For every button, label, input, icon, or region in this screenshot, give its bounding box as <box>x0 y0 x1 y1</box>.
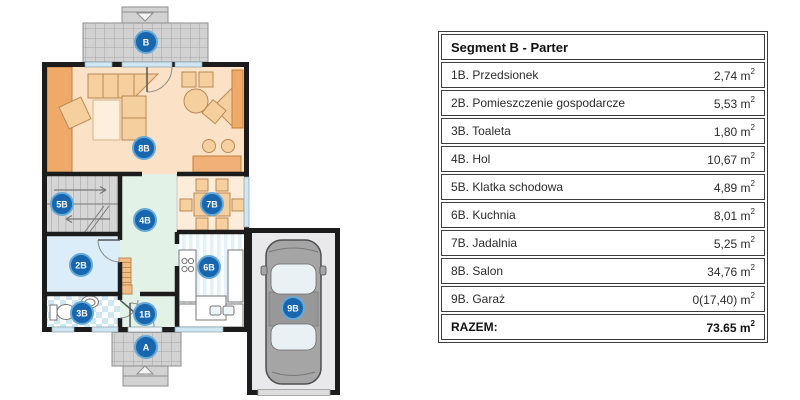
room-label: 2B. Pomieszczenie gospodarcze <box>451 96 625 110</box>
svg-text:3B: 3B <box>76 309 88 319</box>
table-row: 5B. Klatka schodowa 4,89 m2 <box>441 174 765 200</box>
total-label: RAZEM: <box>451 320 498 334</box>
garage-door <box>258 390 330 396</box>
svg-text:8B: 8B <box>138 144 150 154</box>
room-area: 10,67 m2 <box>707 152 755 167</box>
marker-utility: 2B <box>70 254 92 276</box>
table-row: 9B. Garaż 0(17,40) m2 <box>441 286 765 312</box>
table-row: 2B. Pomieszczenie gospodarcze 5,53 m2 <box>441 90 765 116</box>
room-area: 0(17,40) m2 <box>693 292 756 307</box>
room-label: 9B. Garaż <box>451 292 505 306</box>
marker-kitchen: 6B <box>198 256 220 278</box>
room-label: 8B. Salon <box>451 264 503 278</box>
marker-toilet: 3B <box>71 302 93 324</box>
room-area: 8,01 m2 <box>714 208 755 223</box>
table-title: Segment B - Parter <box>451 40 568 55</box>
marker-salon: 8B <box>133 137 155 159</box>
marker-terrace-bottom: A <box>135 336 157 358</box>
room-label: 5B. Klatka schodowa <box>451 180 563 194</box>
room-area: 5,25 m2 <box>714 236 755 251</box>
room-area: 2,74 m2 <box>714 68 755 83</box>
table-row: 6B. Kuchnia 8,01 m2 <box>441 202 765 228</box>
marker-hall: 4B <box>134 209 156 231</box>
area-table: Segment B - Parter 1B. Przedsionek 2,74 … <box>438 31 768 343</box>
table-row: 4B. Hol 10,67 m2 <box>441 146 765 172</box>
room-area: 4,89 m2 <box>714 180 755 195</box>
floorplan-page: B 8B 5B 4B 7B 2B 6B 3B <box>0 0 800 400</box>
table-row: 8B. Salon 34,76 m2 <box>441 258 765 284</box>
room-area: 1,80 m2 <box>714 124 755 139</box>
room-label: 3B. Toaleta <box>451 124 511 138</box>
svg-text:A: A <box>143 343 150 353</box>
floor-plan: B 8B 5B 4B 7B 2B 6B 3B <box>0 0 400 400</box>
table-row: 3B. Toaleta 1,80 m2 <box>441 118 765 144</box>
svg-text:9B: 9B <box>287 304 299 314</box>
room-area: 5,53 m2 <box>714 96 755 111</box>
table-row: 1B. Przedsionek 2,74 m2 <box>441 62 765 88</box>
marker-garage: 9B <box>282 297 304 319</box>
svg-text:5B: 5B <box>56 200 68 210</box>
svg-text:2B: 2B <box>75 261 87 271</box>
marker-dining: 7B <box>201 193 223 215</box>
total-area: 73.65 m2 <box>707 320 756 335</box>
svg-text:6B: 6B <box>203 263 215 273</box>
room-label: 4B. Hol <box>451 152 490 166</box>
table-header: Segment B - Parter <box>441 34 765 60</box>
room-label: 1B. Przedsionek <box>451 68 538 82</box>
marker-vestibule: 1B <box>134 303 156 325</box>
svg-text:4B: 4B <box>139 216 151 226</box>
svg-text:1B: 1B <box>139 310 151 320</box>
svg-text:B: B <box>143 38 150 48</box>
table-total-row: RAZEM: 73.65 m2 <box>441 314 765 340</box>
room-label: 7B. Jadalnia <box>451 236 517 250</box>
table-row: 7B. Jadalnia 5,25 m2 <box>441 230 765 256</box>
marker-terrace-top: B <box>135 31 157 53</box>
room-label: 6B. Kuchnia <box>451 208 516 222</box>
marker-stairs: 5B <box>51 193 73 215</box>
svg-text:7B: 7B <box>206 200 218 210</box>
room-area: 34,76 m2 <box>707 264 755 279</box>
